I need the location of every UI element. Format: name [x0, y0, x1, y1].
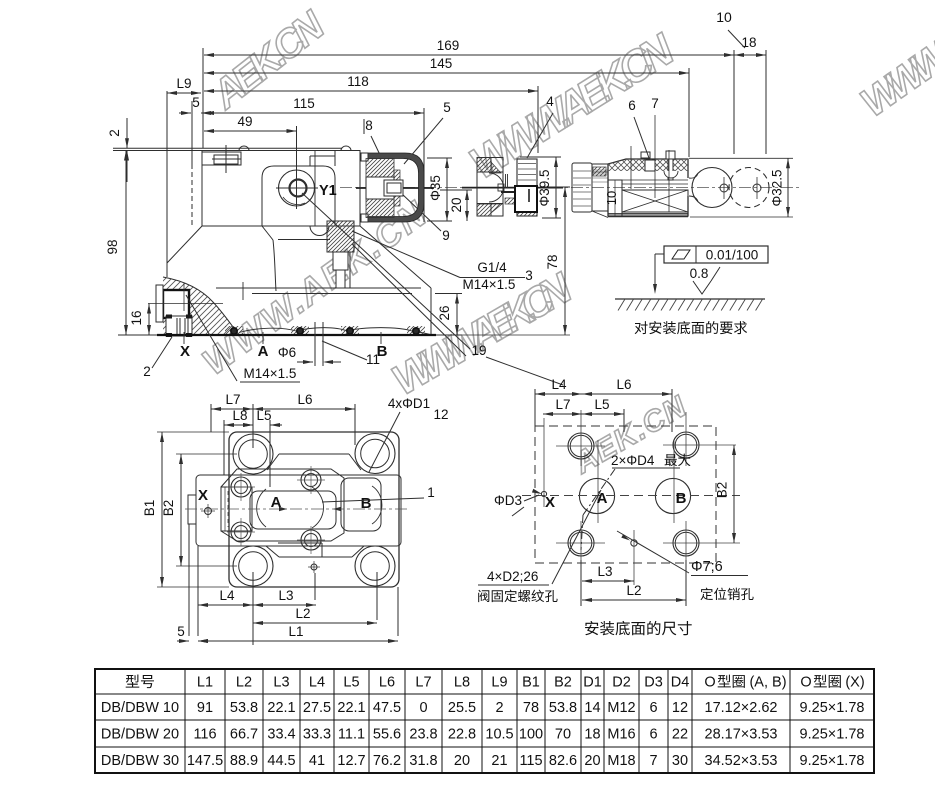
svg-text:G1/4: G1/4	[477, 260, 507, 275]
svg-text:22.1: 22.1	[267, 700, 295, 716]
svg-text:21: 21	[491, 753, 507, 769]
svg-text:44.5: 44.5	[267, 753, 295, 769]
svg-text:22.1: 22.1	[337, 700, 365, 716]
svg-text:L3: L3	[597, 564, 612, 579]
svg-text:9: 9	[442, 228, 450, 243]
svg-text:L8: L8	[454, 675, 470, 691]
svg-text:L6: L6	[616, 377, 631, 392]
svg-text:0.8: 0.8	[690, 266, 709, 281]
svg-text:DB/DBW 20: DB/DBW 20	[101, 727, 179, 743]
svg-text:X: X	[545, 494, 555, 511]
svg-text:M12: M12	[607, 700, 635, 716]
svg-text:169: 169	[437, 38, 460, 53]
svg-text:25.5: 25.5	[448, 700, 476, 716]
svg-text:D1: D1	[583, 675, 602, 691]
svg-text:78: 78	[545, 254, 560, 269]
svg-text:76.2: 76.2	[373, 753, 401, 769]
svg-text:1: 1	[427, 485, 435, 500]
svg-text:10.5: 10.5	[485, 727, 513, 743]
svg-text:17.12×2.62: 17.12×2.62	[705, 700, 778, 716]
svg-text:M14×1.5: M14×1.5	[244, 366, 297, 381]
svg-text:Φ7;6: Φ7;6	[691, 559, 723, 575]
svg-text:D3: D3	[644, 675, 663, 691]
svg-text:X: X	[180, 343, 190, 360]
svg-text:6: 6	[628, 98, 636, 113]
svg-text:4×D2;26: 4×D2;26	[487, 569, 538, 584]
svg-text:70: 70	[555, 727, 571, 743]
svg-text:4: 4	[546, 94, 554, 109]
svg-text:L2: L2	[236, 675, 252, 691]
svg-text:L7: L7	[415, 675, 431, 691]
svg-text:98: 98	[105, 239, 120, 254]
svg-text:0.01/100: 0.01/100	[706, 248, 759, 263]
svg-text:B: B	[377, 343, 388, 360]
svg-text:23.8: 23.8	[409, 727, 437, 743]
svg-text:A: A	[271, 494, 282, 511]
svg-text:20: 20	[584, 753, 600, 769]
svg-text:3: 3	[525, 268, 533, 283]
svg-text:4xΦD1: 4xΦD1	[388, 396, 430, 411]
svg-text:Φ32.5: Φ32.5	[770, 169, 785, 206]
svg-text:118: 118	[347, 74, 369, 89]
svg-text:B: B	[676, 490, 687, 507]
svg-text:L8: L8	[232, 408, 247, 423]
svg-text:L7: L7	[555, 397, 570, 412]
svg-text:B2: B2	[161, 500, 176, 517]
svg-text:115: 115	[293, 96, 315, 111]
svg-text:L6: L6	[297, 392, 312, 407]
svg-text:L3: L3	[278, 588, 293, 603]
svg-text:22: 22	[672, 727, 688, 743]
svg-text:115: 115	[519, 753, 542, 769]
svg-text:11.1: 11.1	[338, 727, 365, 743]
svg-text:L5: L5	[594, 397, 609, 412]
svg-text:28.17×3.53: 28.17×3.53	[705, 727, 778, 743]
svg-text:2: 2	[143, 364, 151, 379]
svg-text:B2: B2	[554, 675, 572, 691]
svg-text:L5: L5	[343, 675, 359, 691]
svg-text:5: 5	[177, 624, 185, 639]
svg-text:DB/DBW 30: DB/DBW 30	[101, 753, 179, 769]
svg-text:22.8: 22.8	[448, 727, 476, 743]
svg-text:78: 78	[523, 700, 539, 716]
svg-text:6: 6	[649, 700, 657, 716]
svg-text:0: 0	[419, 700, 427, 716]
svg-text:B1: B1	[522, 675, 540, 691]
svg-text:91: 91	[197, 700, 213, 716]
svg-text:55.6: 55.6	[373, 727, 401, 743]
svg-text:9.25×1.78: 9.25×1.78	[800, 700, 865, 716]
svg-text:O: O	[800, 675, 811, 691]
svg-text:147.5: 147.5	[187, 753, 223, 769]
svg-text:L7: L7	[225, 392, 240, 407]
svg-text:10: 10	[716, 9, 732, 25]
svg-text:B1: B1	[142, 500, 157, 517]
svg-text:L3: L3	[273, 675, 289, 691]
svg-text:L6: L6	[379, 675, 395, 691]
svg-text:L2: L2	[626, 583, 641, 598]
svg-text:41: 41	[309, 753, 325, 769]
svg-text:8: 8	[365, 118, 373, 133]
svg-text:5: 5	[443, 100, 451, 115]
svg-text:7: 7	[649, 753, 657, 769]
svg-text:20: 20	[449, 197, 464, 212]
svg-text:33.3: 33.3	[303, 727, 331, 743]
svg-text:12: 12	[672, 700, 688, 716]
svg-text:12.7: 12.7	[337, 753, 365, 769]
svg-text:L4: L4	[219, 588, 235, 603]
svg-text:2: 2	[495, 700, 503, 716]
svg-text:27.5: 27.5	[303, 700, 331, 716]
svg-text:Y1: Y1	[319, 183, 337, 199]
svg-text:16: 16	[129, 310, 144, 325]
svg-text:88.9: 88.9	[230, 753, 258, 769]
svg-text:14: 14	[584, 700, 600, 716]
svg-text:5: 5	[192, 95, 200, 110]
svg-text:(A, B): (A, B)	[749, 675, 786, 691]
svg-text:100: 100	[519, 727, 543, 743]
svg-text:9.25×1.78: 9.25×1.78	[800, 727, 865, 743]
svg-text:49: 49	[237, 114, 252, 129]
svg-text:47.5: 47.5	[373, 700, 401, 716]
svg-text:L9: L9	[491, 675, 507, 691]
svg-text:D4: D4	[671, 675, 690, 691]
svg-text:2: 2	[107, 129, 122, 137]
svg-text:L1: L1	[288, 624, 303, 639]
svg-text:20: 20	[454, 753, 470, 769]
svg-text:L9: L9	[176, 76, 191, 91]
svg-text:26: 26	[437, 305, 452, 320]
svg-text:6: 6	[649, 727, 657, 743]
svg-text:10: 10	[604, 191, 619, 205]
svg-text:ΦD3: ΦD3	[494, 493, 522, 508]
svg-text:L4: L4	[309, 675, 325, 691]
svg-text:33.4: 33.4	[267, 727, 295, 743]
svg-text:18: 18	[741, 35, 756, 50]
svg-text:18: 18	[584, 727, 600, 743]
svg-text:53.8: 53.8	[230, 700, 258, 716]
svg-text:Φ39.5: Φ39.5	[537, 169, 552, 206]
svg-text:L2: L2	[295, 606, 310, 621]
svg-text:66.7: 66.7	[230, 727, 258, 743]
svg-text:D2: D2	[612, 675, 631, 691]
svg-text:82.6: 82.6	[549, 753, 577, 769]
svg-text:M14×1.5: M14×1.5	[463, 277, 516, 292]
svg-text:X: X	[198, 487, 208, 504]
svg-text:B2: B2	[715, 482, 730, 499]
svg-text:34.52×3.53: 34.52×3.53	[705, 753, 778, 769]
svg-text:31.8: 31.8	[409, 753, 437, 769]
svg-text:116: 116	[193, 727, 216, 743]
svg-text:O: O	[704, 675, 715, 691]
svg-text:A: A	[258, 343, 269, 360]
svg-text:DB/DBW 10: DB/DBW 10	[101, 700, 179, 716]
svg-text:L4: L4	[551, 377, 567, 392]
svg-text:Φ6: Φ6	[278, 345, 296, 360]
svg-text:145: 145	[430, 56, 453, 71]
svg-text:M16: M16	[607, 727, 635, 743]
svg-text:19: 19	[471, 343, 486, 358]
svg-text:L5: L5	[256, 408, 271, 423]
svg-text:30: 30	[672, 753, 688, 769]
svg-text:2×ΦD4: 2×ΦD4	[611, 453, 655, 468]
svg-text:(X): (X)	[845, 675, 864, 691]
svg-text:M18: M18	[607, 753, 635, 769]
svg-text:7: 7	[651, 96, 659, 111]
svg-text:12: 12	[433, 407, 448, 422]
svg-text:9.25×1.78: 9.25×1.78	[800, 753, 865, 769]
svg-text:53.8: 53.8	[549, 700, 577, 716]
svg-text:L1: L1	[197, 675, 213, 691]
svg-text:Φ35: Φ35	[428, 175, 443, 201]
svg-text:B: B	[361, 495, 372, 512]
